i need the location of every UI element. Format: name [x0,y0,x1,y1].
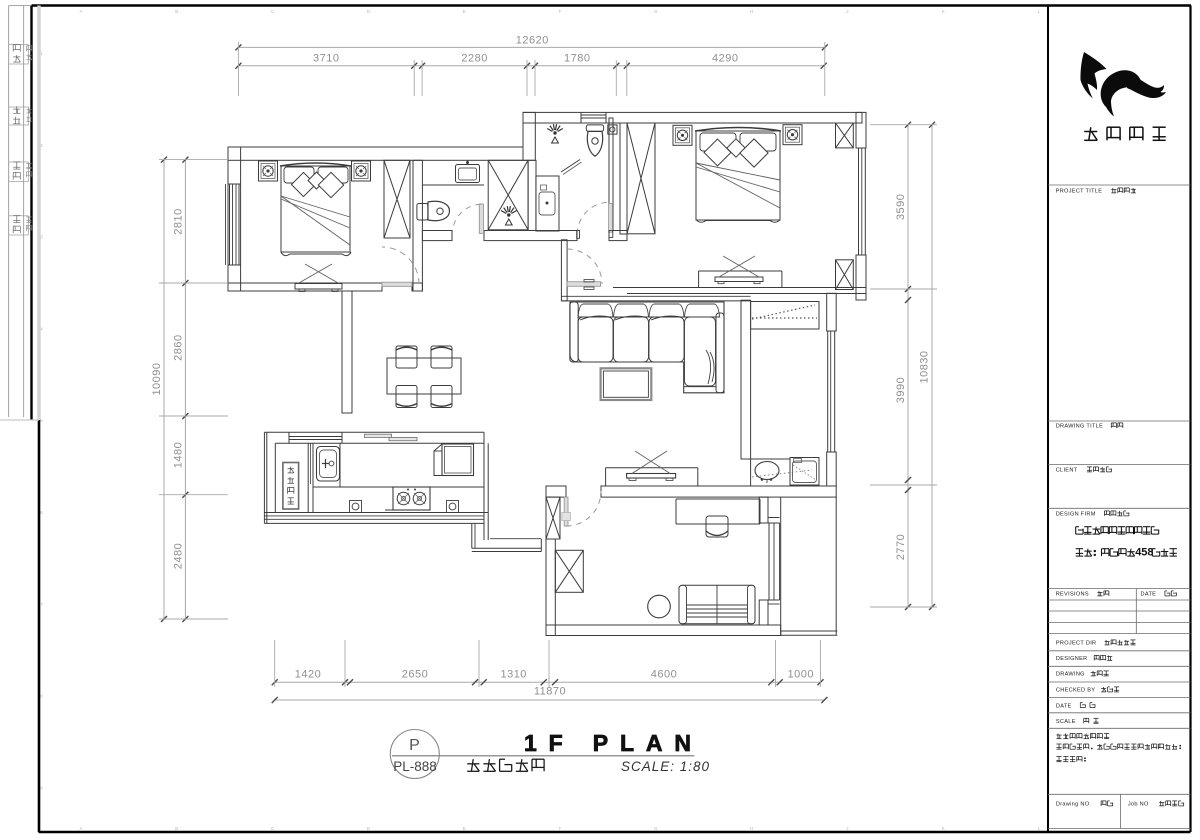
svg-text:B: B [175,826,178,831]
svg-text:SCALE: 1:80: SCALE: 1:80 [621,759,710,774]
svg-text:10090: 10090 [151,362,163,395]
svg-text:SCALE: SCALE [1056,719,1076,725]
svg-text:10830: 10830 [919,350,931,383]
svg-text:PROJECT DIR: PROJECT DIR [1056,641,1097,647]
svg-text:2770: 2770 [895,534,907,560]
svg-text:G: G [654,826,658,831]
svg-text:458: 458 [1135,547,1153,559]
svg-text:G: G [654,9,658,14]
svg-text:PROJECT TITLE: PROJECT TITLE [1056,189,1103,195]
svg-text:H: H [750,9,753,14]
svg-text:Drawing NO: Drawing NO [1056,802,1090,808]
svg-text:A: A [79,9,82,14]
svg-text:1000: 1000 [788,669,814,681]
svg-text:PL-888: PL-888 [393,759,437,774]
svg-text:CLIENT: CLIENT [1056,468,1078,474]
svg-text:1780: 1780 [564,53,590,65]
svg-text:2860: 2860 [173,334,185,360]
svg-text:J: J [846,9,848,14]
svg-text:CHECKED BY: CHECKED BY [1056,688,1095,694]
svg-text:4290: 4290 [712,53,738,65]
svg-text:11870: 11870 [534,686,566,698]
svg-text:REVISIONS: REVISIONS [1056,592,1089,598]
svg-text:2810: 2810 [173,208,185,234]
svg-text:4600: 4600 [651,669,677,681]
svg-text:F: F [559,9,562,14]
svg-text:3590: 3590 [895,194,907,220]
svg-text:K: K [942,9,945,14]
svg-text:P: P [409,737,420,754]
svg-text:2480: 2480 [173,543,185,569]
svg-text:E: E [463,9,466,14]
svg-text:DATE: DATE [1056,703,1072,709]
svg-text:DESIGNER: DESIGNER [1056,656,1088,662]
svg-text:1420: 1420 [295,669,321,681]
svg-text:3710: 3710 [313,53,339,65]
svg-text:1480: 1480 [173,442,185,468]
svg-text:Job NO: Job NO [1128,802,1149,808]
svg-text:1310: 1310 [500,669,526,681]
svg-text:E: E [463,826,466,831]
svg-text:2280: 2280 [461,53,487,65]
svg-text:DATE: DATE [1141,592,1157,598]
svg-text:DRAWING: DRAWING [1056,672,1085,678]
svg-text:B: B [175,9,178,14]
svg-text:A: A [79,826,82,831]
svg-text:H: H [750,826,753,831]
svg-text:K: K [942,826,945,831]
svg-text:DRAWING TITLE: DRAWING TITLE [1056,424,1103,430]
svg-text:2650: 2650 [402,669,428,681]
svg-text:J: J [846,826,848,831]
svg-text:DESIGN FIRM: DESIGN FIRM [1056,512,1096,518]
svg-text:12620: 12620 [516,34,549,46]
svg-text:3990: 3990 [895,377,907,403]
svg-text:F: F [559,826,562,831]
